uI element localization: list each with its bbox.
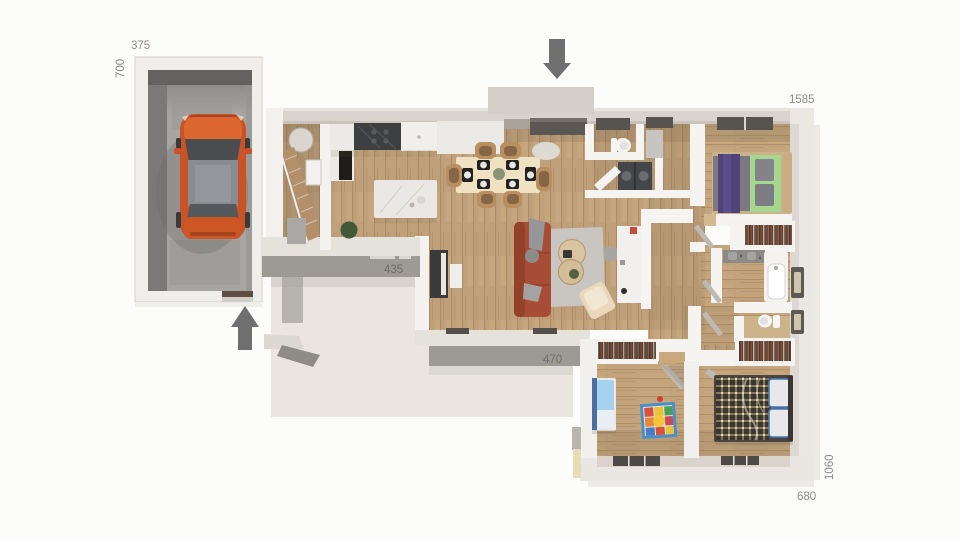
svg-text:680: 680 xyxy=(797,491,816,503)
svg-text:375: 375 xyxy=(131,40,150,52)
svg-text:700: 700 xyxy=(115,59,127,78)
svg-text:435: 435 xyxy=(384,264,403,276)
svg-text:1060: 1060 xyxy=(824,454,836,480)
svg-text:1585: 1585 xyxy=(789,94,815,106)
svg-text:470: 470 xyxy=(543,354,562,366)
